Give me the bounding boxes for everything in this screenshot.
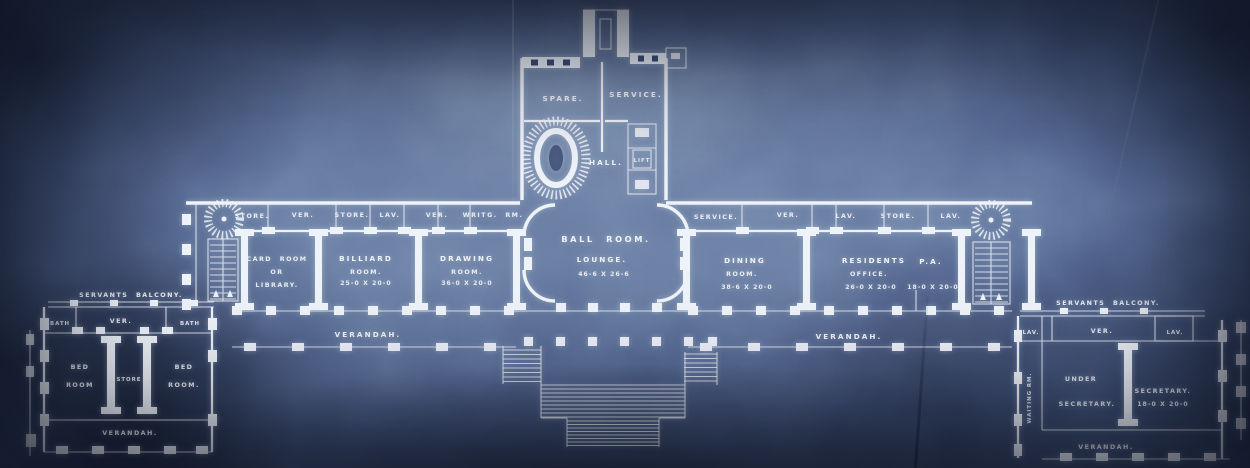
label-ver-2: VER. [426, 212, 449, 219]
label-residents-dim-1: 26-0 X 20-0 [845, 284, 897, 291]
label-billiard-dim: 25-0 X 20-0 [340, 280, 392, 287]
label-drawing-1: DRAWING [440, 254, 494, 263]
label-ball-room: BALL ROOM. [561, 234, 650, 244]
label-lav-east-2: LAV. [941, 213, 962, 220]
label-drawing-2: ROOM. [451, 269, 483, 276]
label-service-strip: SERVICE. [694, 214, 738, 221]
label-under-secretary-2: SECRETARY. [1059, 401, 1116, 408]
label-west-servants-balcony: SERVANTS BALCONY. [79, 292, 183, 299]
label-lift: LIFT [634, 158, 651, 164]
label-lav-east-1: LAV. [836, 213, 857, 220]
label-west-ver: VER. [110, 318, 133, 325]
label-secretary: SECRETARY. [1135, 388, 1192, 395]
label-store-1: STORE. [235, 213, 270, 220]
label-lounge: LOUNGE. [577, 255, 628, 264]
label-east-lav-1: LAV. [1023, 330, 1040, 336]
label-ver-1: VER. [292, 212, 315, 219]
label-hall: HALL. [589, 158, 623, 167]
label-west-store: STORE [117, 377, 142, 383]
label-dining-1: DINING [724, 256, 766, 265]
label-residents-pa: P.A. [919, 257, 943, 266]
label-verandah-west: VERANDAH. [335, 330, 402, 339]
label-waiting-room: WAITING RM. [1027, 373, 1033, 424]
east-wing-walls [1014, 308, 1246, 461]
label-card-room-3: LIBRARY. [255, 282, 298, 289]
label-bed-2-line2: ROOM. [168, 382, 200, 389]
label-dining-2: ROOM. [726, 271, 758, 278]
label-lounge-dim: 46-6 X 26-6 [578, 271, 630, 278]
label-dining-dim: 38-6 X 20-0 [721, 284, 773, 291]
label-drawing-dim: 36-0 X 20-0 [441, 280, 493, 287]
label-secretary-dim: 18-0 X 20-0 [1137, 401, 1189, 408]
label-under-secretary-1: UNDER [1065, 376, 1097, 383]
label-ver-east: VER. [777, 212, 800, 219]
label-bed-2-line1: BED [175, 364, 194, 371]
label-east-verandah: VERANDAH. [1078, 444, 1133, 451]
label-bed-1-line2: ROOM [66, 382, 94, 389]
label-east-ver: VER. [1091, 328, 1114, 335]
grand-terrace-stairs [503, 337, 717, 447]
label-spare-room: SPARE. [542, 94, 583, 103]
entrance-porch [583, 10, 629, 57]
label-east-lav-2: LAV. [1167, 330, 1184, 336]
label-writing-room: WRITG. RM. [463, 212, 524, 219]
label-service-room: SERVICE. [609, 90, 663, 99]
label-east-servants-balcony: SERVANTS BALCONY. [1056, 300, 1160, 307]
label-store-2: STORE. [335, 212, 370, 219]
label-residents-dim-2: 18-0 X 20-0 [907, 284, 959, 291]
floor-plan-drawing: SPARE. SERVICE. HALL. LIFT [0, 0, 1250, 468]
label-billiard-2: ROOM. [350, 269, 382, 276]
label-bath-1: BATH [50, 321, 70, 327]
label-verandah-east: VERANDAH. [816, 332, 883, 341]
label-bath-2: BATH [180, 321, 200, 327]
east-end-stair [973, 204, 1010, 304]
label-bed-1-line1: BED [71, 364, 90, 371]
blueprint-photograph: SPARE. SERVICE. HALL. LIFT [0, 0, 1250, 468]
tower-walls [522, 48, 686, 200]
label-store-east: STORE. [881, 213, 916, 220]
label-card-room-1: CARD ROOM [246, 256, 307, 263]
label-west-verandah: VERANDAH. [102, 430, 157, 437]
label-lav-west: LAV. [380, 212, 401, 219]
spiral-stair [526, 121, 586, 195]
label-residents-office: OFFICE. [850, 271, 888, 278]
label-residents: RESIDENTS [842, 256, 906, 265]
label-billiard-1: BILLIARD [339, 254, 393, 263]
label-card-room-2: OR [270, 269, 283, 276]
